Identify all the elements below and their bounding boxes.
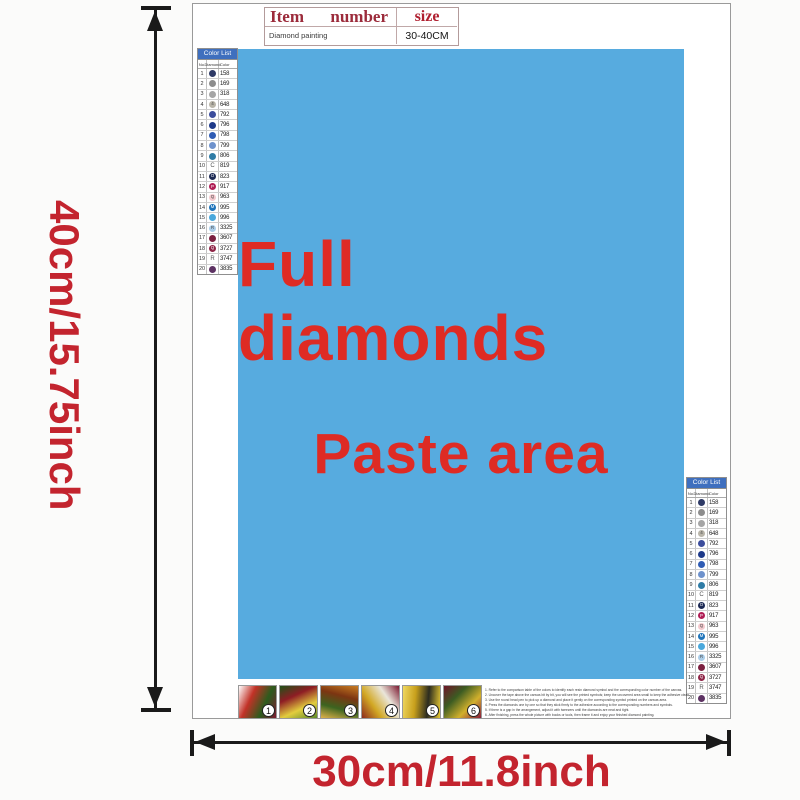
color-row-symbol bbox=[696, 508, 708, 517]
diamond-symbol-letter: R bbox=[210, 256, 214, 262]
color-row-symbol bbox=[207, 151, 219, 160]
color-row-symbol bbox=[207, 234, 219, 243]
diamond-color-dot bbox=[209, 80, 216, 87]
color-row-number: 10 bbox=[687, 591, 696, 600]
diamond-color-dot bbox=[698, 540, 705, 547]
color-list-row: 13Q963 bbox=[687, 622, 726, 632]
dmc-color-code: 3325 bbox=[219, 223, 237, 232]
paste-area: Full diamonds Paste area bbox=[238, 49, 684, 679]
step-photo-tile: 3 bbox=[320, 685, 359, 719]
diamond-color-dot bbox=[209, 235, 216, 242]
dmc-color-code: 3727 bbox=[708, 673, 726, 682]
color-list-title: Color List bbox=[687, 478, 726, 489]
header-size: size bbox=[397, 8, 457, 27]
diamond-color-dot bbox=[209, 70, 216, 77]
color-row-symbol: Q bbox=[696, 673, 708, 682]
product-diagram: 40cm/15.75inch Item number size Diamond … bbox=[0, 0, 800, 800]
color-row-symbol: 4 bbox=[696, 529, 708, 538]
color-list-row: 5792 bbox=[687, 539, 726, 549]
color-row-number: 8 bbox=[687, 570, 696, 579]
color-list-row: 2169 bbox=[198, 79, 237, 89]
instruction-line: 6. After finishing, press the whole pict… bbox=[485, 713, 725, 718]
diamond-symbol-letter: C bbox=[699, 592, 703, 598]
color-list-row: 16R3325 bbox=[687, 652, 726, 662]
col-color: Color bbox=[708, 489, 726, 497]
color-row-number: 20 bbox=[198, 265, 207, 274]
canvas-sheet: Item number size Diamond painting 30-40C… bbox=[192, 3, 731, 719]
dmc-color-code: 169 bbox=[219, 79, 237, 88]
diamond-color-dot bbox=[698, 551, 705, 558]
dmc-color-code: 917 bbox=[219, 182, 237, 191]
cell-size-value: 30-40CM bbox=[397, 27, 457, 44]
color-row-number: 15 bbox=[687, 642, 696, 651]
color-list-row: 44648 bbox=[198, 100, 237, 110]
diamond-color-dot: R bbox=[209, 225, 216, 232]
color-list-row: 7798 bbox=[198, 131, 237, 141]
color-row-symbol bbox=[696, 498, 708, 507]
color-list-row: 14M995 bbox=[687, 632, 726, 642]
color-row-number: 5 bbox=[687, 539, 696, 548]
color-list-row: 6796 bbox=[687, 549, 726, 559]
color-list-left: Color List No. Diamond Color 11582169331… bbox=[197, 48, 238, 275]
color-row-number: 13 bbox=[687, 622, 696, 631]
diamond-color-dot bbox=[209, 214, 216, 221]
color-row-number: 18 bbox=[687, 673, 696, 682]
color-row-number: 14 bbox=[198, 203, 207, 212]
color-row-symbol bbox=[696, 642, 708, 651]
paste-area-line2: Paste area bbox=[313, 421, 608, 487]
color-row-symbol: R bbox=[696, 652, 708, 661]
diamond-color-dot bbox=[698, 509, 705, 516]
color-list-row: 8799 bbox=[198, 141, 237, 151]
color-row-symbol bbox=[696, 663, 708, 672]
color-row-symbol bbox=[696, 519, 708, 528]
color-row-number: 11 bbox=[198, 172, 207, 181]
color-row-number: 13 bbox=[198, 193, 207, 202]
step-photo-tile: 1 bbox=[238, 685, 277, 719]
color-row-number: 3 bbox=[198, 90, 207, 99]
step-photo-tile: 4 bbox=[361, 685, 400, 719]
step-photo-tile: 6 bbox=[443, 685, 482, 719]
diamond-color-dot: M bbox=[698, 633, 705, 640]
color-list-row: 19R3747 bbox=[198, 254, 237, 264]
color-list-columns: No. Diamond Color bbox=[687, 489, 726, 498]
height-dimension-label: 40cm/15.75inch bbox=[40, 200, 88, 545]
color-row-symbol: P bbox=[207, 182, 219, 191]
diamond-color-dot: R bbox=[698, 654, 705, 661]
color-row-number: 4 bbox=[198, 100, 207, 109]
dmc-color-code: 158 bbox=[219, 69, 237, 78]
diamond-color-dot: O bbox=[209, 173, 216, 180]
color-list-row: 3318 bbox=[687, 519, 726, 529]
color-row-symbol: Q bbox=[207, 193, 219, 202]
step-photo-tile: 2 bbox=[279, 685, 318, 719]
height-arrow-down-head bbox=[147, 687, 163, 707]
color-row-symbol: O bbox=[207, 172, 219, 181]
color-row-number: 9 bbox=[687, 580, 696, 589]
color-row-number: 14 bbox=[687, 632, 696, 641]
dmc-color-code: 792 bbox=[219, 110, 237, 119]
step-number-badge: 2 bbox=[303, 704, 316, 717]
color-list-row: 15996 bbox=[687, 642, 726, 652]
dmc-color-code: 3727 bbox=[219, 244, 237, 253]
color-list-row: 173607 bbox=[198, 234, 237, 244]
color-row-number: 9 bbox=[198, 151, 207, 160]
color-row-symbol: P bbox=[696, 611, 708, 620]
height-arrow-bottom-cap bbox=[141, 708, 171, 712]
color-row-number: 16 bbox=[687, 652, 696, 661]
color-list-row: 18Q3727 bbox=[687, 673, 726, 683]
dmc-color-code: 318 bbox=[219, 90, 237, 99]
dmc-color-code: 823 bbox=[708, 601, 726, 610]
color-list-row: 9806 bbox=[687, 580, 726, 590]
color-list-row: 10C819 bbox=[687, 591, 726, 601]
color-row-symbol bbox=[207, 120, 219, 129]
color-row-number: 17 bbox=[687, 663, 696, 672]
height-arrow-up-head bbox=[147, 11, 163, 31]
color-row-symbol: M bbox=[207, 203, 219, 212]
dmc-color-code: 995 bbox=[708, 632, 726, 641]
diamond-color-dot bbox=[209, 142, 216, 149]
dmc-color-code: 3835 bbox=[219, 265, 237, 274]
header-item: Item bbox=[270, 8, 304, 27]
diamond-color-dot bbox=[209, 266, 216, 273]
diamond-color-dot bbox=[698, 561, 705, 568]
color-row-symbol bbox=[696, 560, 708, 569]
step-number-badge: 4 bbox=[385, 704, 398, 717]
dmc-color-code: 963 bbox=[708, 622, 726, 631]
width-arrow-line bbox=[194, 741, 728, 744]
diamond-color-dot: M bbox=[209, 204, 216, 211]
color-list-row: 11O823 bbox=[198, 172, 237, 182]
dmc-color-code: 3607 bbox=[219, 234, 237, 243]
color-row-number: 6 bbox=[687, 549, 696, 558]
diamond-color-dot: O bbox=[698, 602, 705, 609]
color-list-row: 3318 bbox=[198, 90, 237, 100]
color-list-row: 6796 bbox=[198, 120, 237, 130]
color-row-symbol: Q bbox=[207, 244, 219, 253]
color-row-symbol: O bbox=[696, 601, 708, 610]
color-row-number: 17 bbox=[198, 234, 207, 243]
color-row-symbol bbox=[696, 580, 708, 589]
col-diamond: Diamond bbox=[696, 489, 708, 497]
diamond-color-dot bbox=[698, 499, 705, 506]
table-header-item-number: Item number bbox=[265, 8, 397, 27]
step-number-badge: 6 bbox=[467, 704, 480, 717]
color-row-number: 16 bbox=[198, 223, 207, 232]
diamond-color-dot: Q bbox=[209, 245, 216, 252]
diamond-color-dot: 4 bbox=[209, 101, 216, 108]
color-list-right: Color List No. Diamond Color 11582169331… bbox=[686, 477, 727, 704]
step-number-badge: 1 bbox=[262, 704, 275, 717]
dmc-color-code: 796 bbox=[708, 549, 726, 558]
diamond-symbol-letter: C bbox=[210, 163, 214, 169]
color-row-symbol bbox=[207, 131, 219, 140]
item-size-table: Item number size Diamond painting 30-40C… bbox=[264, 7, 459, 46]
diamond-color-dot: 4 bbox=[698, 530, 705, 537]
color-list-row: 14M995 bbox=[198, 203, 237, 213]
color-row-number: 1 bbox=[198, 69, 207, 78]
dmc-color-code: 819 bbox=[708, 591, 726, 600]
dmc-color-code: 917 bbox=[708, 611, 726, 620]
color-list-row: 13Q963 bbox=[198, 193, 237, 203]
width-dimension-label: 30cm/11.8inch bbox=[192, 747, 731, 797]
steps-strip: 123456 bbox=[238, 685, 482, 719]
color-list-row: 18Q3727 bbox=[198, 244, 237, 254]
dmc-color-code: 3747 bbox=[219, 254, 237, 263]
dmc-color-code: 963 bbox=[219, 193, 237, 202]
dmc-color-code: 996 bbox=[219, 213, 237, 222]
dmc-color-code: 792 bbox=[708, 539, 726, 548]
color-row-number: 18 bbox=[198, 244, 207, 253]
color-list-row: 11O823 bbox=[687, 601, 726, 611]
diamond-color-dot bbox=[698, 643, 705, 650]
diamond-color-dot bbox=[209, 153, 216, 160]
dmc-color-code: 158 bbox=[708, 498, 726, 507]
dmc-color-code: 819 bbox=[219, 162, 237, 171]
color-row-symbol bbox=[696, 539, 708, 548]
cell-item-value: Diamond painting bbox=[265, 27, 397, 44]
paste-area-line1: Full diamonds bbox=[238, 227, 684, 375]
color-row-number: 10 bbox=[198, 162, 207, 171]
color-row-symbol bbox=[207, 141, 219, 150]
color-row-symbol: C bbox=[207, 162, 219, 171]
diamond-color-dot bbox=[698, 571, 705, 578]
color-list-row: 10C819 bbox=[198, 162, 237, 172]
color-list-row: 173607 bbox=[687, 663, 726, 673]
color-row-number: 5 bbox=[198, 110, 207, 119]
color-row-number: 2 bbox=[198, 79, 207, 88]
color-row-number: 19 bbox=[198, 254, 207, 263]
diamond-color-dot bbox=[209, 122, 216, 129]
dmc-color-code: 3607 bbox=[708, 663, 726, 672]
color-row-number: 1 bbox=[687, 498, 696, 507]
color-list-row: 203835 bbox=[198, 265, 237, 274]
color-list-row: 44648 bbox=[687, 529, 726, 539]
color-row-number: 7 bbox=[687, 560, 696, 569]
dmc-color-code: 648 bbox=[219, 100, 237, 109]
color-row-number: 12 bbox=[687, 611, 696, 620]
diamond-color-dot bbox=[209, 111, 216, 118]
color-list-row: 7798 bbox=[687, 560, 726, 570]
color-row-symbol: Q bbox=[696, 622, 708, 631]
color-row-symbol bbox=[207, 79, 219, 88]
header-number: number bbox=[330, 8, 388, 27]
color-row-symbol bbox=[207, 110, 219, 119]
diamond-color-dot: P bbox=[209, 183, 216, 190]
color-row-number: 2 bbox=[687, 508, 696, 517]
color-row-number: 7 bbox=[198, 131, 207, 140]
dmc-color-code: 169 bbox=[708, 508, 726, 517]
dmc-color-code: 799 bbox=[708, 570, 726, 579]
diamond-color-dot: Q bbox=[698, 674, 705, 681]
dmc-color-code: 796 bbox=[219, 120, 237, 129]
color-row-number: 4 bbox=[687, 529, 696, 538]
color-row-symbol bbox=[207, 90, 219, 99]
step-number-badge: 5 bbox=[426, 704, 439, 717]
color-list-row: 9806 bbox=[198, 151, 237, 161]
color-row-number: 11 bbox=[687, 601, 696, 610]
color-row-number: 8 bbox=[198, 141, 207, 150]
dmc-color-code: 996 bbox=[708, 642, 726, 651]
color-row-number: 3 bbox=[687, 519, 696, 528]
dmc-color-code: 798 bbox=[219, 131, 237, 140]
color-list-row: 8799 bbox=[687, 570, 726, 580]
color-list-body: 115821693318446485792679677988799980610C… bbox=[198, 69, 237, 274]
dmc-color-code: 995 bbox=[219, 203, 237, 212]
col-diamond: Diamond bbox=[207, 60, 219, 68]
diamond-color-dot: Q bbox=[209, 194, 216, 201]
diamond-color-dot bbox=[698, 520, 705, 527]
diamond-color-dot bbox=[698, 664, 705, 671]
dmc-color-code: 799 bbox=[219, 141, 237, 150]
color-row-number: 15 bbox=[198, 213, 207, 222]
color-row-number: 6 bbox=[198, 120, 207, 129]
color-list-row: 2169 bbox=[687, 508, 726, 518]
height-arrow-line bbox=[154, 10, 157, 710]
color-list-row: 5792 bbox=[198, 110, 237, 120]
color-list-row: 15996 bbox=[198, 213, 237, 223]
color-row-symbol bbox=[696, 570, 708, 579]
color-row-symbol bbox=[696, 549, 708, 558]
dmc-color-code: 806 bbox=[708, 580, 726, 589]
color-row-symbol: C bbox=[696, 591, 708, 600]
dmc-color-code: 798 bbox=[708, 560, 726, 569]
color-row-symbol bbox=[207, 265, 219, 274]
color-list-row: 16R3325 bbox=[198, 223, 237, 233]
color-list-columns: No. Diamond Color bbox=[198, 60, 237, 69]
diamond-color-dot: P bbox=[698, 612, 705, 619]
color-list-row: 1158 bbox=[687, 498, 726, 508]
step-number-badge: 3 bbox=[344, 704, 357, 717]
color-row-symbol: R bbox=[207, 254, 219, 263]
dmc-color-code: 318 bbox=[708, 519, 726, 528]
dmc-color-code: 806 bbox=[219, 151, 237, 160]
color-row-symbol: 4 bbox=[207, 100, 219, 109]
diamond-color-dot bbox=[209, 91, 216, 98]
color-row-symbol bbox=[207, 69, 219, 78]
color-row-symbol: M bbox=[696, 632, 708, 641]
color-row-symbol: R bbox=[207, 223, 219, 232]
color-row-number: 12 bbox=[198, 182, 207, 191]
color-list-row: 12P917 bbox=[198, 182, 237, 192]
color-list-title: Color List bbox=[198, 49, 237, 60]
step-photo-tile: 5 bbox=[402, 685, 441, 719]
color-row-symbol bbox=[207, 213, 219, 222]
instructions-text: 1. Refer to the comparison table of the … bbox=[485, 688, 725, 717]
color-list-body: 115821693318446485792679677988799980610C… bbox=[687, 498, 726, 703]
diamond-color-dot bbox=[209, 132, 216, 139]
diamond-color-dot: Q bbox=[698, 623, 705, 630]
col-color: Color bbox=[219, 60, 237, 68]
color-list-row: 12P917 bbox=[687, 611, 726, 621]
dmc-color-code: 3325 bbox=[708, 652, 726, 661]
color-list-row: 1158 bbox=[198, 69, 237, 79]
dmc-color-code: 823 bbox=[219, 172, 237, 181]
diamond-color-dot bbox=[698, 582, 705, 589]
dmc-color-code: 648 bbox=[708, 529, 726, 538]
